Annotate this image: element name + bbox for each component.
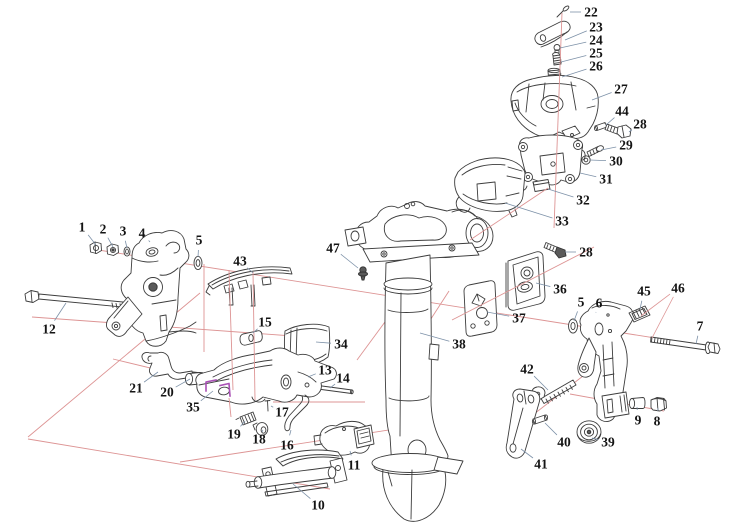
part-label-15: 15 [258,315,272,330]
part-label-38: 38 [452,337,466,352]
leader-line-40 [545,423,557,435]
part-label-21: 21 [129,381,143,396]
part-label-8: 8 [654,414,661,429]
part-label-4: 4 [139,226,146,241]
part-37-plate-drawing [464,281,497,337]
part-label-45: 45 [637,284,651,299]
part-38-driveshaft-housing-drawing [372,255,463,521]
part-7-clamp-screw-drawing [651,337,720,354]
part-15-bushing-drawing [240,331,262,345]
part-1-nut-drawing [90,242,102,254]
part-label-23: 23 [589,20,603,35]
part-label-3: 3 [120,224,127,239]
leader-line-25 [561,55,586,62]
leader-line-16 [290,430,291,435]
part-label-42: 42 [520,362,534,377]
part-label-29: 29 [619,138,633,153]
part-label-30: 30 [609,154,623,169]
part-label-13: 13 [318,363,332,378]
part-27-swivel-bracket-drawing [511,75,598,139]
part-label-35: 35 [186,400,200,415]
part-8-nut-drawing [651,398,667,412]
part-label-31: 31 [599,172,613,187]
part-28b-bolt-drawing [544,243,566,259]
part-label-44: 44 [615,104,629,119]
part-label-10: 10 [311,498,325,513]
part-label-28a: 28 [633,117,647,132]
part-5-washer-left-drawing [194,256,202,269]
leader-line-47 [341,254,358,268]
leader-line-31 [580,173,596,177]
part-36-mount-plate-drawing [506,252,545,311]
part-17-pin-drawing [265,401,270,412]
part-22-screw-drawing [557,5,570,17]
part-43-friction-rack-drawing [206,267,292,306]
leader-line-33 [505,203,552,218]
part-label-11: 11 [348,458,361,473]
part-9-bushing-drawing [629,398,645,409]
leader-line-26 [562,69,586,77]
part-label-19: 19 [227,427,241,442]
part-label-5l: 5 [196,233,203,248]
part-label-12: 12 [42,322,56,337]
part-label-25: 25 [589,46,603,61]
leader-line-17 [271,406,273,407]
part-47-screw-drawing [358,267,367,280]
part-label-22: 22 [584,5,598,20]
leader-line-32 [548,189,573,197]
part-label-1: 1 [79,220,86,235]
part-label-33: 33 [555,214,569,229]
leader-line-30 [590,160,606,161]
part-label-7: 7 [697,319,704,334]
leader-line-7 [696,336,698,344]
part-label-20: 20 [160,385,174,400]
part-label-2: 2 [100,222,107,237]
part-label-17: 17 [275,405,289,420]
leader-line-5r [574,311,578,321]
part-10-roller-bracket-drawing [246,450,347,496]
part-label-34: 34 [334,337,348,352]
part-32-rubber-mount-drawing [533,180,550,192]
part-label-39: 39 [601,435,615,450]
part-label-26: 26 [589,59,603,74]
part-label-27: 27 [614,82,628,97]
part-19-spring-drawing [236,412,256,425]
part-label-36: 36 [553,282,567,297]
part-39-wheel-drawing [577,421,601,443]
part-label-9: 9 [635,413,642,428]
leader-line-12 [54,303,66,321]
part-label-28b: 28 [579,245,593,260]
leader-line-46 [652,297,673,338]
part-5-washer-right-drawing [569,319,578,333]
part-label-18: 18 [252,432,266,447]
leader-line-23 [565,31,587,40]
part-24-ball-drawing [554,45,560,54]
part-label-47: 47 [326,241,340,256]
leader-line-24 [560,42,586,48]
part-label-6: 6 [596,296,603,311]
part-label-37: 37 [512,311,526,326]
diagram-page: 1234512431534131421203519181716101147383… [0,0,742,527]
part-label-40: 40 [557,435,571,450]
part-6-clamp-bracket-right-drawing [578,301,634,421]
part-label-41: 41 [534,457,548,472]
part-label-32: 32 [576,193,590,208]
exploded-parts-diagram: 1234512431534131421203519181716101147383… [0,0,742,527]
part-label-43: 43 [233,254,247,269]
part-29-bolt-drawing [587,145,604,157]
part-38-mount-bracket-drawing [345,202,493,262]
part-label-46: 46 [671,281,685,296]
part-label-16: 16 [280,438,294,453]
part-label-24: 24 [589,33,603,48]
part-2-nut-drawing [107,244,119,256]
part-33-mount-band-drawing [455,158,525,217]
part-4-clamp-bracket-left-drawing [106,231,196,347]
part-23-lever-plate-drawing [535,21,570,47]
part-3-washer-drawing [124,247,130,256]
part-label-5r: 5 [578,295,585,310]
part-label-14: 14 [336,371,350,386]
part-28a-bolt-drawing [605,124,631,138]
leader-line-44 [606,118,614,125]
